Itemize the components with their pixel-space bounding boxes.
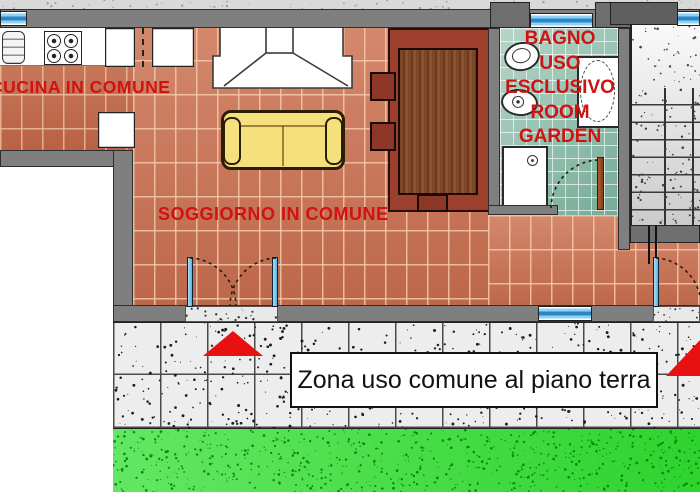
kitchen-white-unit: [98, 112, 135, 148]
garden-grass: [113, 428, 700, 492]
wall-bathroom-south: [488, 205, 558, 215]
door-leaf-right: [272, 257, 278, 307]
cabinet-dashed-divider: [142, 28, 144, 67]
sofa-icon: [221, 110, 345, 170]
dining-table-icon: [398, 48, 478, 195]
stairs-window-icon: [677, 11, 700, 26]
kitchen-label: CUCINA IN COMUNE: [0, 77, 170, 98]
living-room-label: SOGGIORNO IN COMUNE: [158, 204, 389, 225]
door-leaf-east: [653, 257, 659, 307]
chair-icon: [370, 122, 396, 151]
bathroom-window-icon: [530, 13, 593, 28]
stairs-icon: [630, 25, 700, 243]
bathroom-label-line: USO: [492, 52, 628, 77]
double-door-threshold: [185, 306, 278, 322]
stairs-landing: [630, 225, 700, 243]
door-leaf-left: [187, 257, 193, 307]
ground-zone-caption-box: Zona uso comune al piano terra: [290, 352, 658, 408]
floor-plan: CUCINA IN COMUNE SOGGIORNO IN COMUNE BAG…: [0, 0, 700, 500]
stairs-railing: [648, 226, 650, 264]
stove-icon: [44, 31, 82, 65]
kitchen-cabinet: [152, 28, 194, 67]
bathroom-label-line: ESCLUSIVO: [492, 76, 628, 101]
chair-icon: [370, 72, 396, 101]
bathroom-label-line: GARDEN: [492, 125, 628, 150]
sink-icon: [2, 31, 25, 64]
chair-icon: [417, 194, 448, 212]
bathroom-label-line: ROOM: [492, 101, 628, 126]
ground-zone-caption: Zona uso comune al piano terra: [298, 366, 651, 395]
bathroom-label: BAGNO USO ESCLUSIVO ROOM GARDEN: [492, 27, 628, 150]
shower-icon: [502, 146, 548, 210]
bathroom-label-line: BAGNO: [492, 27, 628, 52]
right-door-threshold: [653, 306, 700, 322]
bathroom-door-leaf: [597, 157, 604, 210]
wall-pillar: [490, 2, 530, 28]
wall-west: [113, 150, 133, 322]
south-window-icon: [538, 306, 592, 321]
kitchen-window-icon: [0, 11, 27, 26]
stairs-top-wall: [610, 2, 678, 25]
kitchen-cabinet: [105, 28, 135, 67]
